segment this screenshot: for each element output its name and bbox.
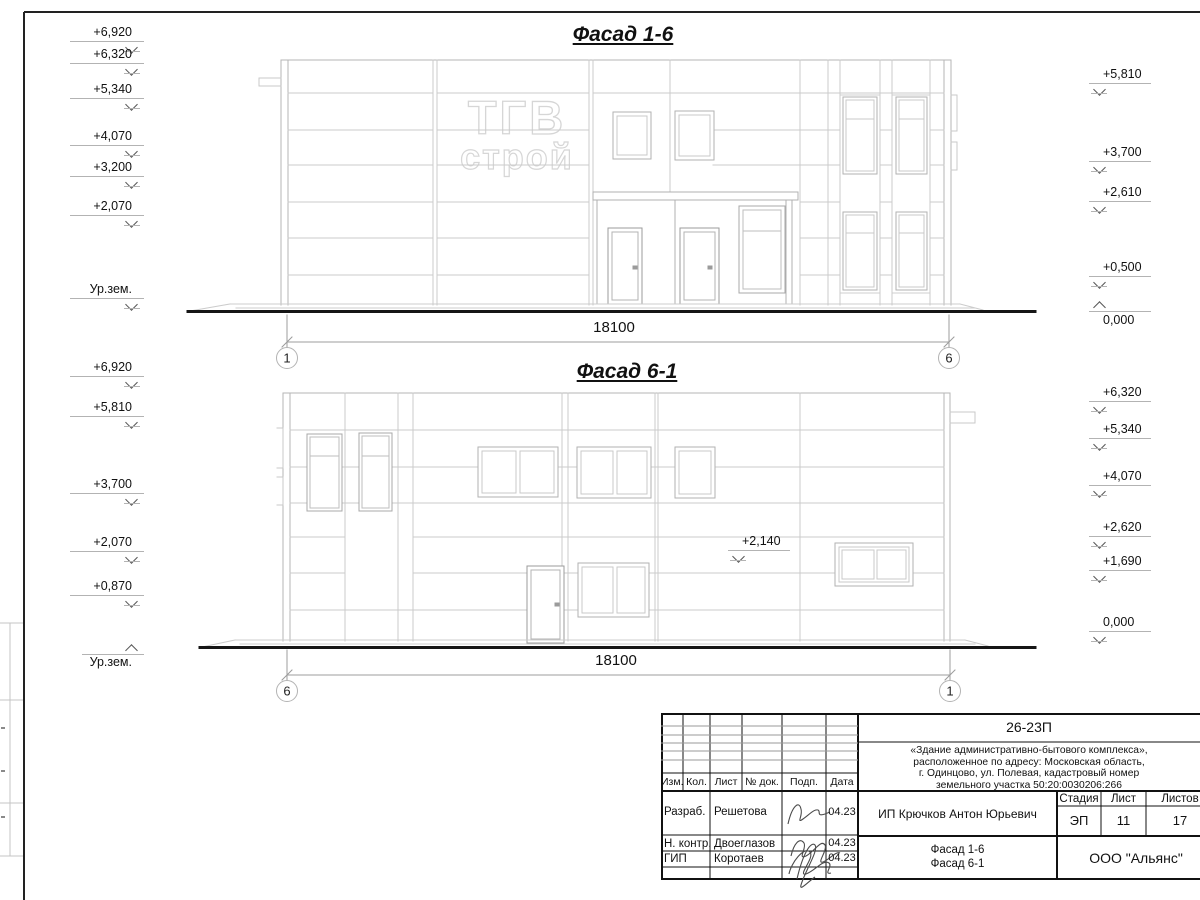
level-mark: 0,000 [1087,301,1183,333]
date-value: 04.23 [826,837,858,849]
level-base [124,73,140,74]
level-mark: +3,200 [52,160,148,192]
level-base [124,561,140,562]
level-base [124,605,140,606]
level-value: +5,810 [1103,67,1183,81]
level-base [1091,641,1107,642]
level-base [1091,171,1107,172]
column-header-list: Лист [710,776,742,788]
level-base [1091,448,1107,449]
person-name: Коротаев [714,853,764,865]
level-value: +0,500 [1103,260,1183,274]
project-description: «Здание административно-бытового комплек… [860,745,1198,791]
stage-value: ЭП [1057,813,1101,828]
level-value: +5,340 [52,82,132,96]
level-value: Ур.зем. [52,655,132,669]
sheets-label: Листов [1146,793,1200,805]
level-value: 0,000 [1103,313,1183,327]
description-line: г. Одинцово, ул. Полевая, кадастровый но… [860,768,1198,780]
description-line: земельного участка 50:20:0030206:266 [860,780,1198,792]
level-base [124,155,140,156]
level-mark: +6,920 [52,360,148,392]
level-value: +0,870 [52,579,132,593]
door [608,228,719,304]
drawing-sheet: ТГВ строй [0,0,1200,900]
level-value: +3,700 [52,477,132,491]
person-name: Решетова [714,806,767,818]
column-header-data: Дата [826,776,858,788]
column-header-doc: № док. [742,776,782,788]
level-base [1091,411,1107,412]
level-mark: Ур.зем. [52,645,148,677]
column-header-kol: Кол. [683,776,710,788]
level-mark: +3,700 [1087,145,1183,177]
level-base [124,426,140,427]
level-value: +1,690 [1103,554,1183,568]
level-mark: +5,810 [1087,67,1183,99]
column-header-izm: Изм. [661,776,683,788]
level-base [1091,93,1107,94]
facade-6-1-title: Фасад 6-1 [542,360,712,384]
level-base [124,225,140,226]
level-value: +5,340 [1103,422,1183,436]
stage-label: Стадия [1057,793,1101,805]
level-value: +3,200 [52,160,132,174]
person-name: Двоеглазов [714,838,775,850]
level-value: +2,070 [52,535,132,549]
content-line: Фасад 1-6 [858,843,1057,857]
level-base [124,503,140,504]
level-value: +6,320 [1103,385,1183,399]
level-base [124,386,140,387]
level-shelf [82,654,144,655]
project-code: 26-23П [858,719,1200,735]
level-mark: +2,620 [1087,520,1183,552]
level-mark: +4,070 [1087,469,1183,501]
level-mark: +0,500 [1087,260,1183,292]
dimension-value: 18100 [554,319,674,336]
level-mark: Ур.зем. [52,282,148,314]
level-value: Ур.зем. [52,282,132,296]
content-line: Фасад 6-1 [858,857,1057,871]
level-mark: +5,340 [52,82,148,114]
level-mark: 0,000 [1087,615,1183,647]
level-mark: +2,140 [726,534,822,566]
level-mark: +6,320 [1087,385,1183,417]
window [478,447,715,498]
level-value: +3,700 [1103,145,1183,159]
level-mark: +5,810 [52,400,148,432]
level-mark: +1,690 [1087,554,1183,586]
role-label: ГИП [664,853,687,865]
level-mark: +0,870 [52,579,148,611]
axis-label: 6 [945,351,952,366]
level-value: 0,000 [1103,615,1183,629]
level-base [124,308,140,309]
client-name: ИП Крючков Антон Юрьевич [858,807,1057,821]
level-mark: +2,610 [1087,185,1183,217]
level-base [1091,546,1107,547]
level-base [730,560,746,561]
level-value: +6,320 [52,47,132,61]
role-label: Разраб. [664,806,705,818]
level-value: +4,070 [1103,469,1183,483]
drawing-content: Фасад 1-6 Фасад 6-1 [858,843,1057,871]
sheets-total: 17 [1146,813,1200,828]
level-mark: +4,070 [52,129,148,161]
role-label: Н. контр. [664,838,711,850]
level-mark: +5,340 [1087,422,1183,454]
level-base [1091,580,1107,581]
level-base [1091,211,1107,212]
level-mark: +2,070 [52,199,148,231]
window [739,206,785,293]
axis-label: 1 [283,351,290,366]
level-value: +2,070 [52,199,132,213]
organization-name: ООО "Альянс" [1057,850,1200,866]
facade-1-6-title: Фасад 1-6 [538,23,708,47]
level-base [1091,495,1107,496]
sheet-number: 11 [1101,813,1146,828]
door [527,566,564,643]
level-mark: +3,700 [52,477,148,509]
axis-label: 6 [283,684,290,699]
description-line: «Здание административно-бытового комплек… [860,745,1198,757]
level-value: +2,140 [742,534,822,548]
level-value: +2,620 [1103,520,1183,534]
level-value: +2,610 [1103,185,1183,199]
sheet-label: Лист [1101,793,1146,805]
axis-label: 1 [946,684,953,699]
window [307,433,392,511]
left-edge-fragment [0,623,23,856]
date-value: 04.23 [826,852,858,864]
description-line: расположенное по адресу: Московская обла… [860,757,1198,769]
level-value: +6,920 [52,25,132,39]
dimension-value: 18100 [556,652,676,669]
logo-tgv-line2: строй [460,136,574,177]
level-base [124,108,140,109]
level-mark: +6,320 [52,47,148,79]
date-value: 04.23 [826,806,858,818]
level-value: +6,920 [52,360,132,374]
level-base [1091,286,1107,287]
window [613,111,714,160]
level-value: +4,070 [52,129,132,143]
level-base [124,186,140,187]
level-value: +5,810 [52,400,132,414]
level-mark: +2,070 [52,535,148,567]
column-header-podp: Подп. [782,776,826,788]
